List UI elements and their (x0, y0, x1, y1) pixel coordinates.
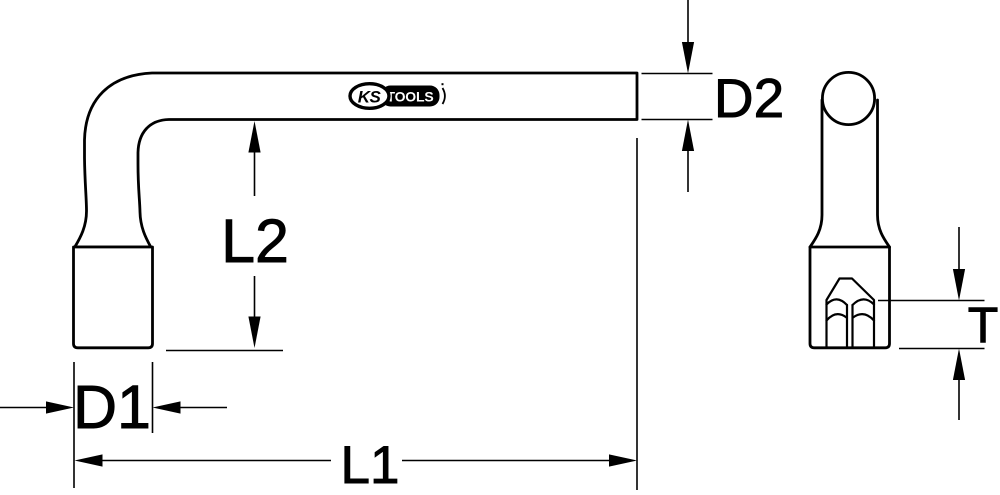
d2-label: D2 (714, 67, 784, 129)
logo-ks-text: KS (358, 87, 382, 106)
socket-head-side (810, 247, 890, 348)
logo-tools-text: TOOLS (387, 88, 434, 104)
ks-tools-logo: TOOLS KS (350, 83, 445, 108)
d1-label: D1 (73, 373, 151, 441)
technical-drawing-page: TOOLS KS D2 L2 (0, 0, 1000, 495)
side-handle-end-circle (822, 72, 874, 124)
wrench-side-view (810, 72, 890, 347)
socket-head-front (74, 247, 153, 348)
l1-label: L1 (341, 436, 400, 495)
technical-drawing-canvas: TOOLS KS D2 L2 (0, 0, 1000, 495)
l2-label: L2 (221, 207, 289, 275)
t-label: T (968, 297, 999, 353)
logo-trademark-tick (442, 83, 444, 85)
